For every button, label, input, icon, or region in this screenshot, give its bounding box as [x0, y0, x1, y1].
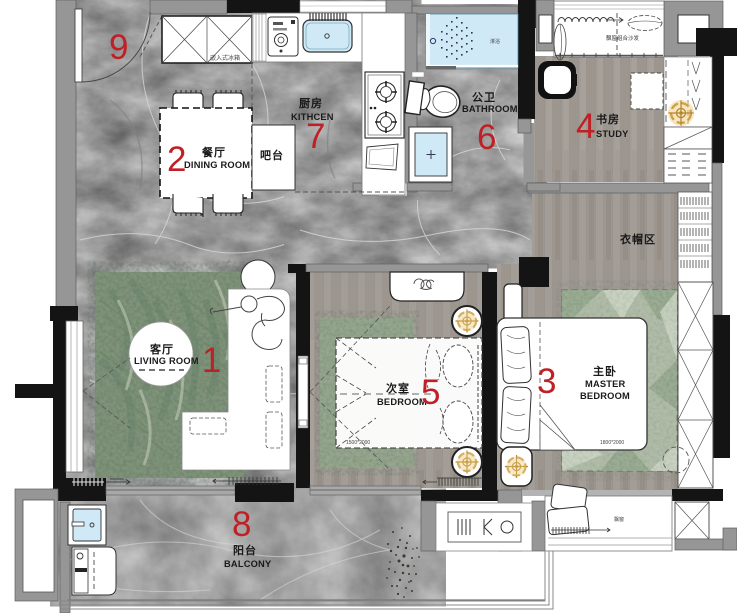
svg-text:MASTER: MASTER — [585, 379, 626, 389]
svg-text:飘窗组合沙发: 飘窗组合沙发 — [606, 34, 640, 42]
svg-text:衣帽区: 衣帽区 — [620, 232, 656, 246]
svg-text:餐厅: 餐厅 — [201, 145, 226, 159]
svg-text:6: 6 — [477, 118, 496, 157]
svg-text:公卫: 公卫 — [472, 91, 496, 104]
svg-text:BATHROOM: BATHROOM — [462, 104, 518, 114]
svg-text:7: 7 — [306, 117, 325, 156]
svg-text:1800*2000: 1800*2000 — [600, 440, 624, 446]
svg-text:阳台: 阳台 — [233, 543, 257, 557]
svg-text:3: 3 — [537, 362, 556, 401]
svg-text:淋浴: 淋浴 — [490, 38, 500, 45]
svg-text:2: 2 — [167, 140, 186, 179]
svg-text:飘窗: 飘窗 — [614, 516, 624, 523]
svg-text:BEDROOM: BEDROOM — [377, 397, 427, 407]
svg-text:DINING ROOM: DINING ROOM — [184, 160, 250, 170]
svg-text:主卧: 主卧 — [593, 364, 617, 378]
svg-text:厨房: 厨房 — [299, 96, 323, 110]
svg-text:5: 5 — [421, 373, 440, 412]
svg-text:4: 4 — [576, 107, 595, 146]
svg-text:客厅: 客厅 — [149, 342, 174, 356]
svg-text:嵌入式冰箱: 嵌入式冰箱 — [210, 54, 240, 62]
svg-text:LIVING ROOM: LIVING ROOM — [134, 356, 199, 366]
svg-text:8: 8 — [232, 505, 251, 544]
svg-text:次室: 次室 — [386, 381, 410, 395]
svg-text:BALCONY: BALCONY — [224, 559, 272, 569]
svg-text:1500*2000: 1500*2000 — [346, 440, 370, 446]
svg-text:STUDY: STUDY — [596, 129, 629, 139]
svg-text:吧台: 吧台 — [260, 148, 284, 162]
svg-text:1: 1 — [202, 341, 221, 380]
svg-text:BEDROOM: BEDROOM — [580, 391, 630, 401]
svg-text:9: 9 — [109, 28, 128, 67]
svg-text:书房: 书房 — [596, 112, 620, 126]
